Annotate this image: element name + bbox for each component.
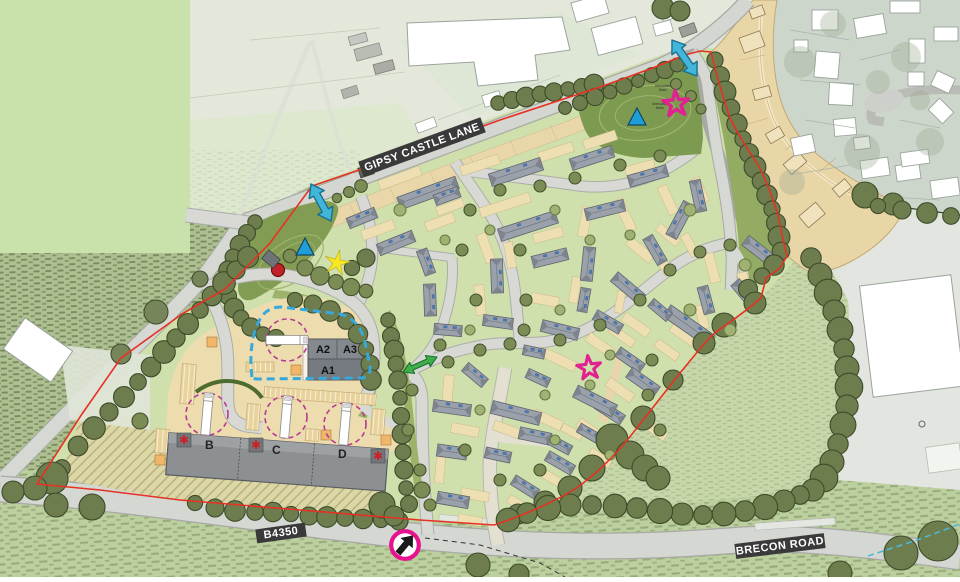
- svg-text:B: B: [205, 438, 214, 452]
- svg-text:✱: ✱: [179, 433, 189, 447]
- svg-text:✱: ✱: [373, 449, 383, 463]
- svg-text:C: C: [272, 443, 281, 457]
- svg-text:A2: A2: [316, 344, 330, 356]
- svg-text:✱: ✱: [251, 438, 261, 452]
- svg-text:D: D: [338, 447, 347, 461]
- svg-text:A3: A3: [343, 344, 357, 356]
- svg-text:Basin: Basin: [656, 106, 664, 110]
- svg-text:Basin: Basin: [659, 88, 667, 92]
- svg-text:A1: A1: [321, 365, 335, 377]
